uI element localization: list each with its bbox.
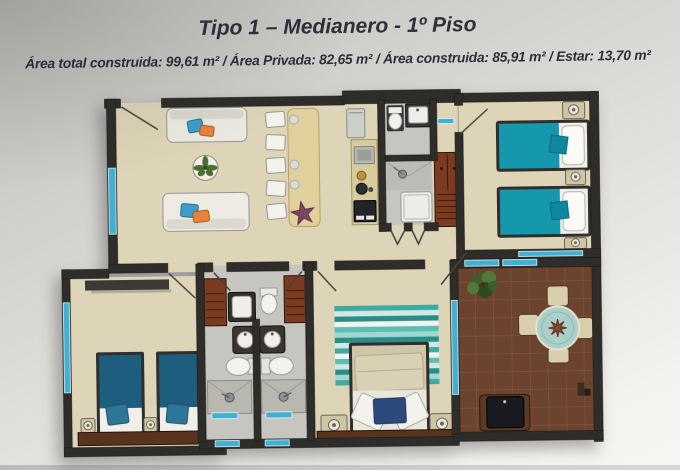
wall bbox=[227, 262, 289, 272]
wall bbox=[342, 89, 460, 104]
window bbox=[215, 440, 239, 446]
single-bed-blue bbox=[159, 354, 202, 410]
shower-door bbox=[212, 412, 238, 418]
wall bbox=[456, 91, 598, 102]
sliding-door bbox=[451, 300, 458, 394]
wall bbox=[109, 263, 168, 273]
wall bbox=[377, 99, 386, 231]
blanket-fold bbox=[549, 135, 568, 154]
dining-chair bbox=[266, 135, 286, 151]
glass-shelf bbox=[438, 118, 454, 123]
wall bbox=[404, 223, 412, 231]
duvet bbox=[354, 353, 424, 392]
plate bbox=[290, 180, 299, 189]
pillow-navy bbox=[373, 398, 406, 425]
dining-chair bbox=[266, 203, 287, 220]
wall bbox=[453, 430, 603, 441]
plate bbox=[290, 160, 299, 169]
cushion-orange bbox=[192, 210, 209, 223]
dining-chair bbox=[265, 111, 285, 128]
toilet-tank bbox=[389, 107, 402, 113]
closet-shelf bbox=[85, 279, 169, 290]
single-bed-blue bbox=[99, 355, 142, 411]
desk-shelf bbox=[78, 431, 201, 446]
window bbox=[108, 168, 116, 234]
bathtub bbox=[401, 192, 432, 222]
window bbox=[465, 260, 499, 266]
master-bedroom bbox=[315, 304, 455, 440]
wall bbox=[62, 269, 109, 279]
wall bbox=[335, 260, 425, 270]
blanket-fold bbox=[550, 201, 569, 220]
sink-bowl bbox=[357, 171, 366, 180]
wall bbox=[454, 93, 462, 105]
window bbox=[519, 251, 583, 257]
wall bbox=[379, 223, 391, 231]
window bbox=[63, 303, 70, 393]
dining-chair bbox=[266, 157, 286, 173]
dining-chair bbox=[266, 180, 286, 196]
photographed-page: Tipo 1 – Medianero - 1º Piso Área total … bbox=[0, 0, 680, 470]
wall bbox=[455, 132, 465, 259]
cushion-orange bbox=[199, 125, 214, 137]
plate bbox=[289, 115, 298, 124]
cooking-pot bbox=[356, 183, 367, 194]
pillow bbox=[166, 403, 189, 424]
window bbox=[503, 259, 537, 265]
door-mark bbox=[577, 383, 584, 396]
centerpiece-flower bbox=[549, 319, 567, 337]
wall bbox=[429, 99, 437, 161]
outdoor-chair bbox=[547, 286, 568, 306]
window bbox=[265, 440, 289, 446]
toilet-bowl bbox=[261, 294, 277, 314]
wall bbox=[424, 223, 438, 231]
toilet-bowl bbox=[389, 113, 402, 129]
shower-door bbox=[266, 412, 292, 418]
floor-plan-image bbox=[0, 0, 680, 470]
toilet-bowl bbox=[226, 357, 250, 375]
toilet-bowl bbox=[269, 357, 293, 375]
pillow bbox=[106, 404, 129, 426]
wall bbox=[253, 319, 262, 441]
